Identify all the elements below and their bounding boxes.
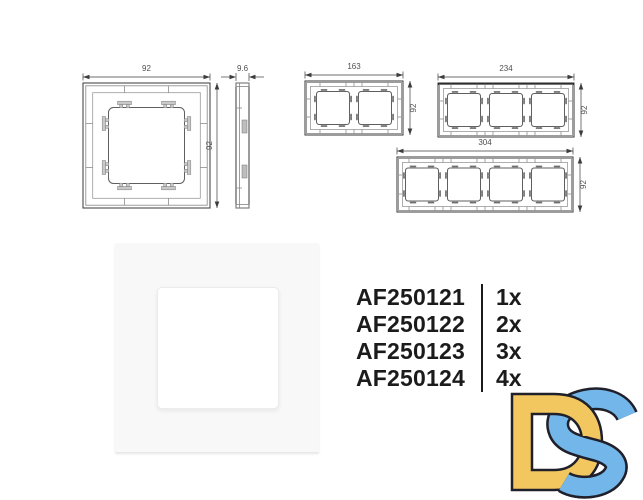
two-gang-frame-drawing: 163 92 — [305, 62, 418, 135]
four-gang-frame-drawing: 304 92 — [397, 138, 588, 212]
four-gang-height-label: 92 — [579, 180, 588, 189]
datasheet-page: 92 92 9.6 — [0, 0, 643, 500]
two-gang-width-label: 163 — [347, 62, 361, 71]
four-gang-width-label: 304 — [478, 138, 492, 147]
product-code-list: AF250121 1x AF250122 2x AF250123 3x AF25… — [356, 284, 522, 392]
product-quantity: 3x — [481, 338, 522, 365]
module-opening — [109, 108, 185, 184]
brand-logo — [506, 386, 643, 500]
front-height-dimension-label: 92 — [205, 141, 214, 150]
two-gang-height-label: 92 — [409, 103, 418, 112]
product-code: AF250123 — [356, 338, 481, 365]
product-code-row: AF250121 1x — [356, 284, 522, 311]
three-gang-height-label: 92 — [580, 105, 589, 114]
single-frame-side-view: 9.6 — [221, 64, 264, 208]
three-gang-frame-drawing: 234 92 — [438, 64, 589, 137]
product-code-row: AF250122 2x — [356, 311, 522, 338]
product-code: AF250121 — [356, 284, 481, 311]
product-quantity: 1x — [481, 284, 522, 311]
front-width-dimension-label: 92 — [142, 64, 151, 73]
product-photo — [115, 243, 319, 452]
product-quantity: 2x — [481, 311, 522, 338]
product-code-row: AF250123 3x — [356, 338, 522, 365]
side-thickness-dimension-label: 9.6 — [237, 64, 249, 73]
product-photo-opening — [157, 287, 279, 409]
multi-gang-technical-drawings: 163 92 — [295, 56, 605, 221]
product-code: AF250122 — [356, 311, 481, 338]
three-gang-width-label: 234 — [499, 64, 513, 73]
product-code-row: AF250124 4x — [356, 365, 522, 392]
single-frame-technical-drawing: 92 92 9.6 — [70, 56, 270, 221]
product-code: AF250124 — [356, 365, 481, 392]
single-frame-front-view: 92 92 — [83, 64, 219, 208]
